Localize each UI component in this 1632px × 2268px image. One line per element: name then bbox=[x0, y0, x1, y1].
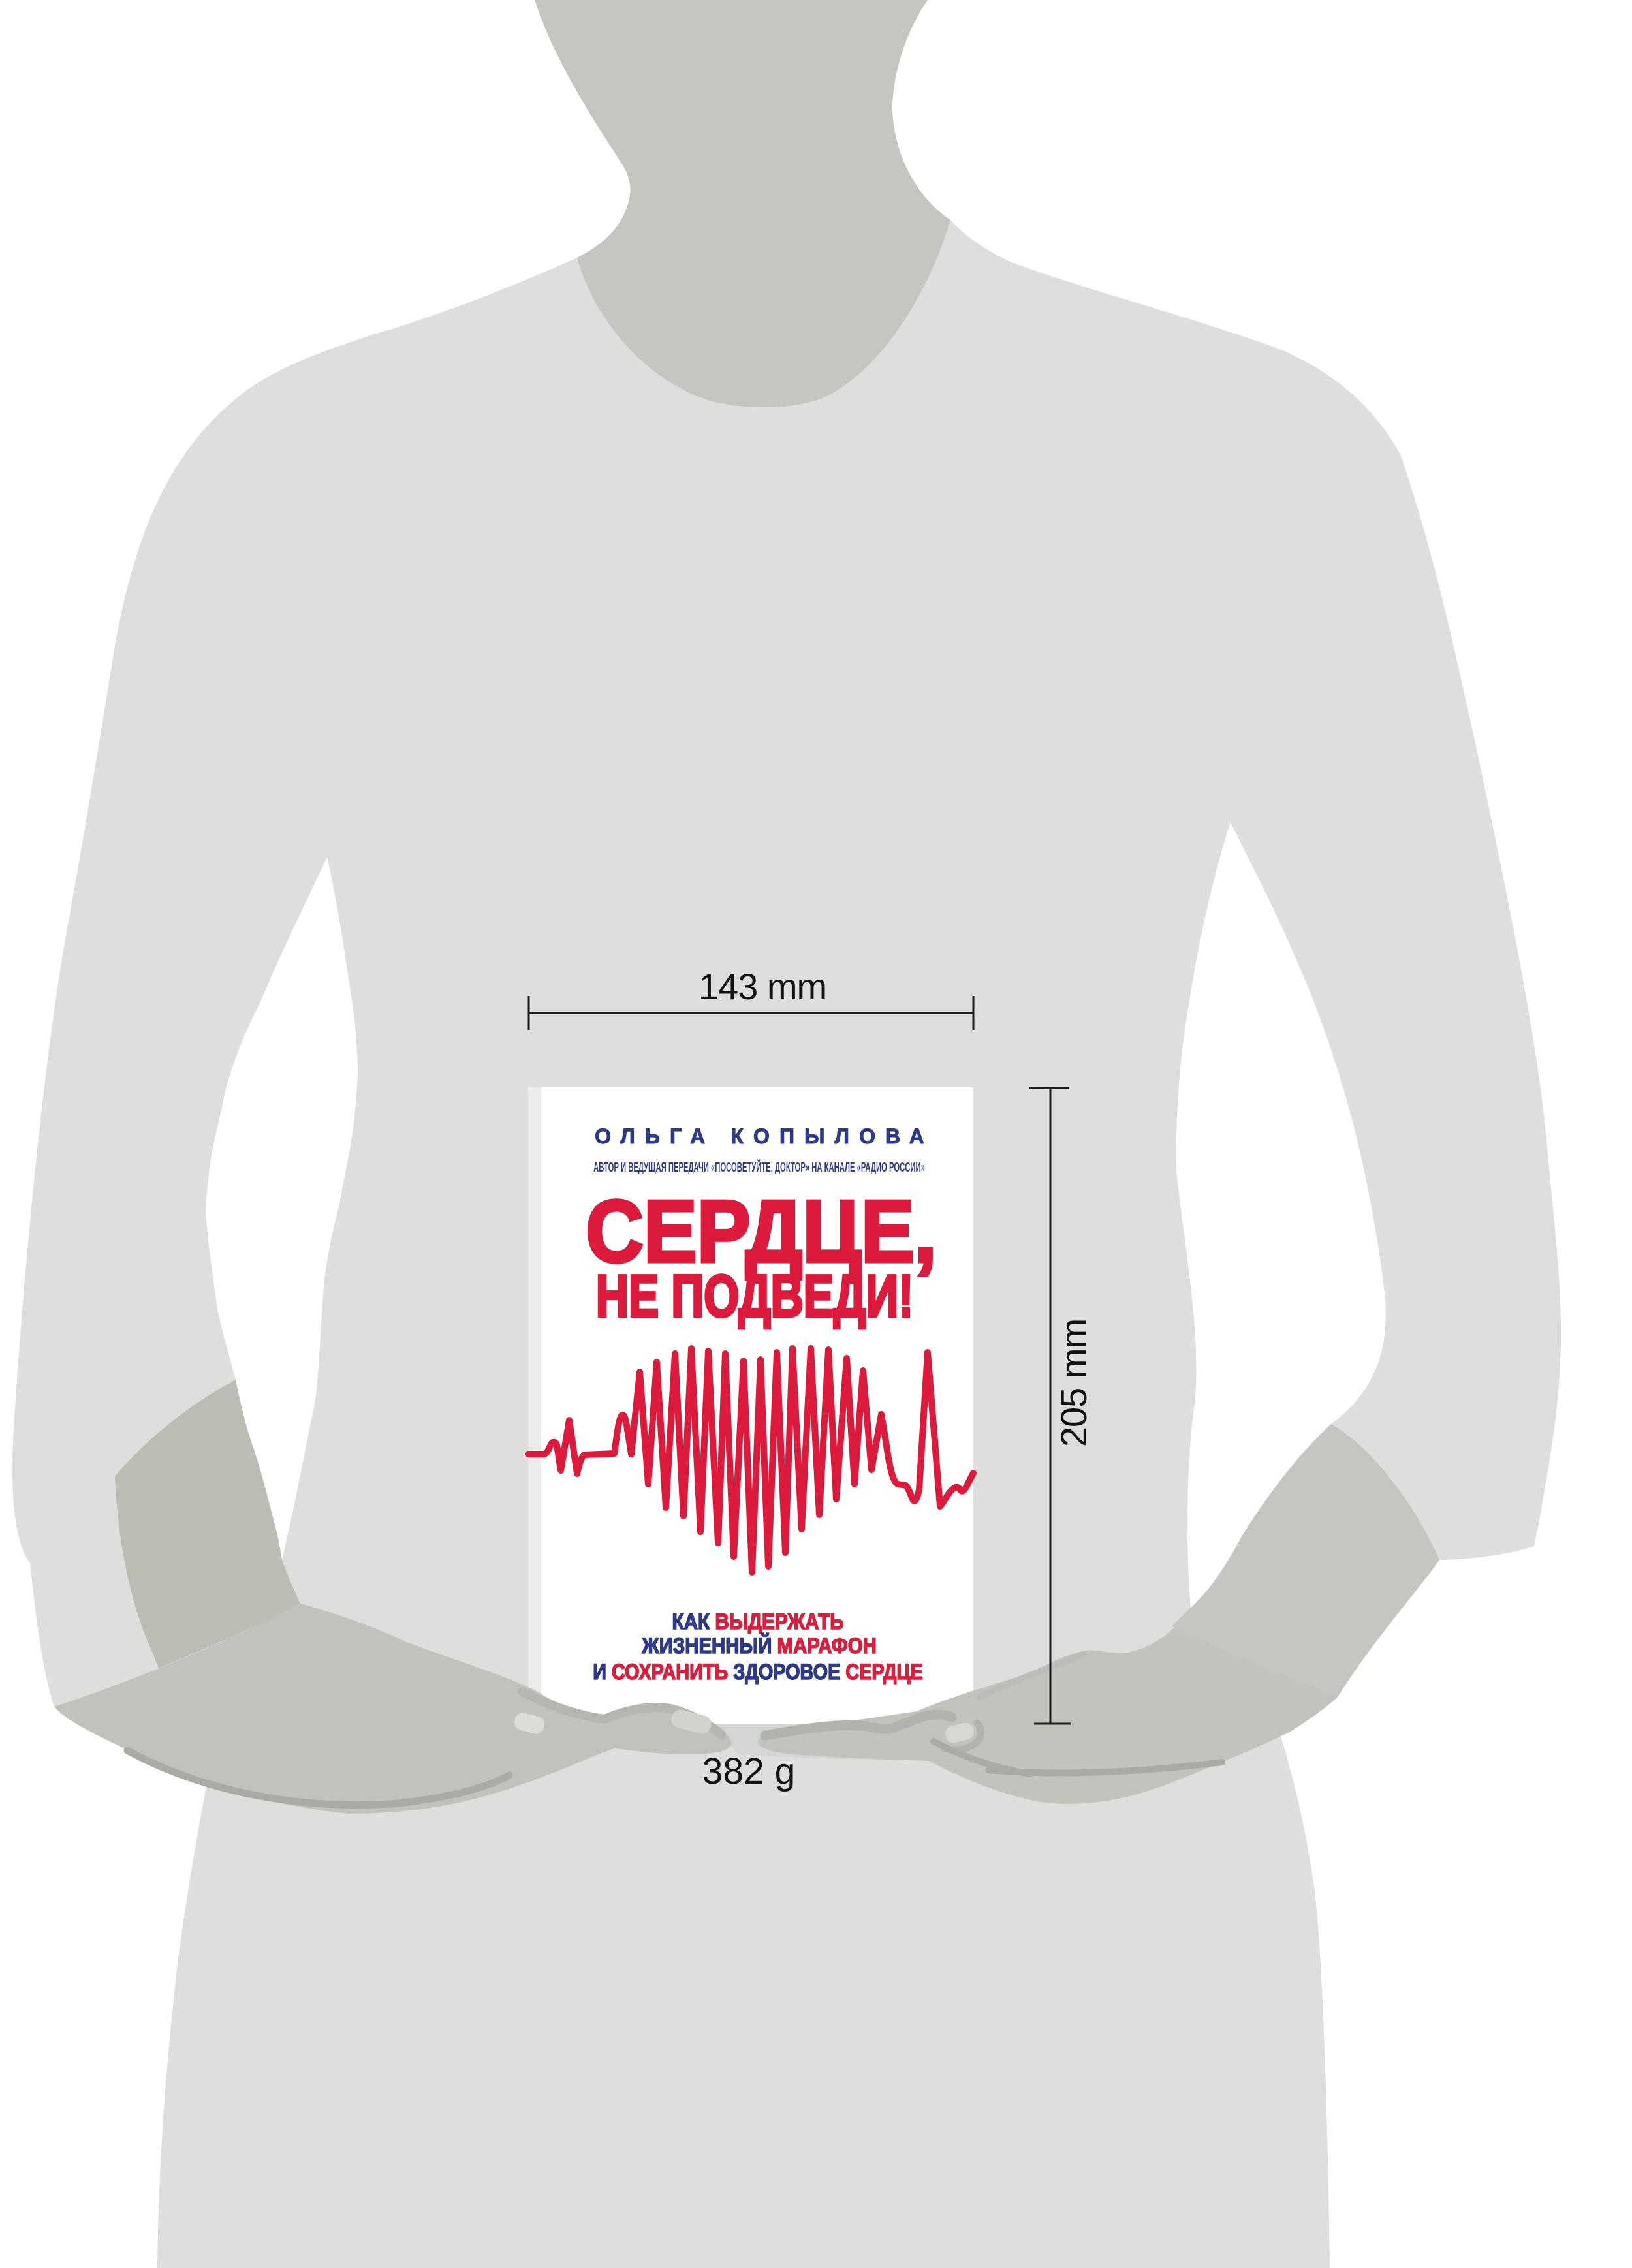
svg-text:И СОХРАНИТЬ ЗДОРОВОЕ СЕРДЦЕ: И СОХРАНИТЬ ЗДОРОВОЕ СЕРДЦЕ bbox=[593, 1659, 922, 1685]
svg-text:ЖИЗНЕННЫЙ МАРАФОН: ЖИЗНЕННЫЙ МАРАФОН bbox=[641, 1633, 877, 1658]
svg-text:ОЛЬГА КОПЫЛОВА: ОЛЬГА КОПЫЛОВА bbox=[595, 1125, 934, 1148]
svg-text:143 mm: 143 mm bbox=[698, 966, 826, 1007]
svg-text:НЕ ПОДВЕДИ!: НЕ ПОДВЕДИ! bbox=[596, 1264, 913, 1329]
svg-text:382 g: 382 g bbox=[702, 1750, 796, 1792]
svg-text:АВТОР И ВЕДУЩАЯ ПЕРЕДАЧИ «ПОСО: АВТОР И ВЕДУЩАЯ ПЕРЕДАЧИ «ПОСОВЕТУЙТЕ, Д… bbox=[593, 1159, 925, 1175]
svg-text:КАК ВЫДЕРЖАТЬ: КАК ВЫДЕРЖАТЬ bbox=[672, 1609, 843, 1634]
svg-text:205 mm: 205 mm bbox=[1053, 1319, 1094, 1447]
